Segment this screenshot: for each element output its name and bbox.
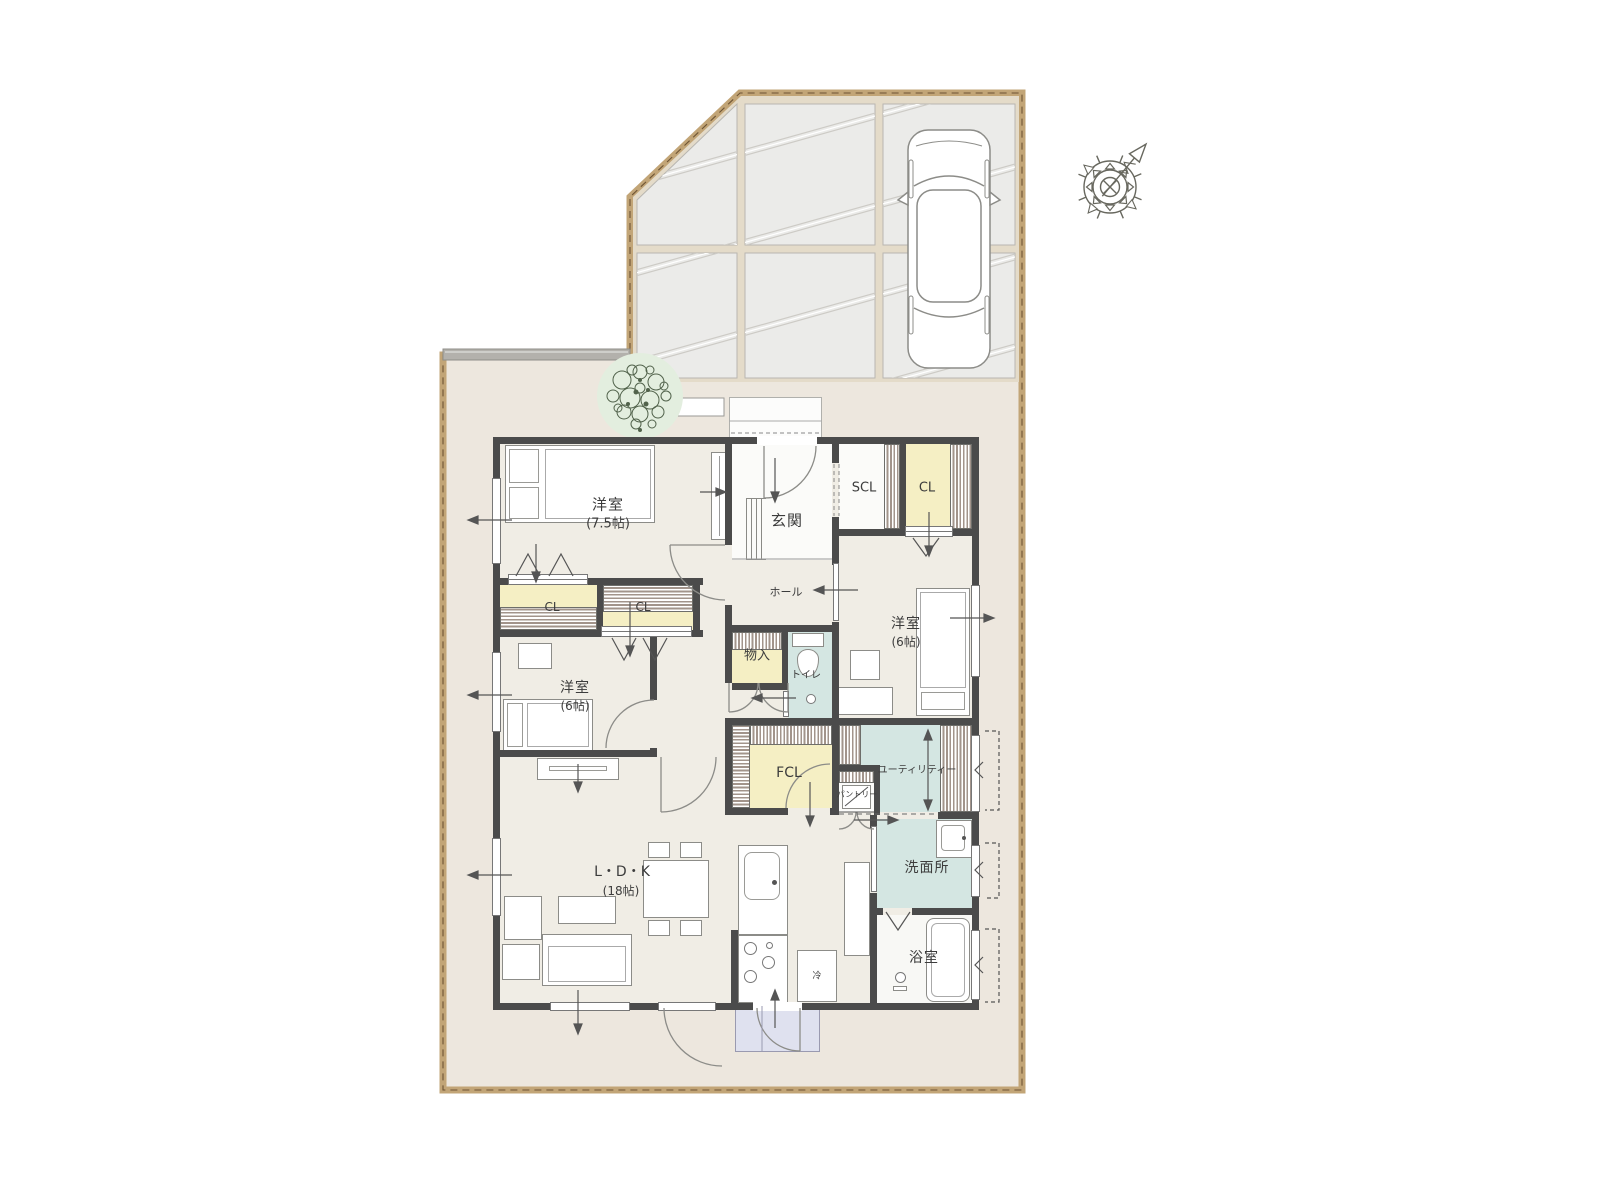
shutter-brackets xyxy=(985,731,999,1002)
side-table xyxy=(502,944,540,980)
wall xyxy=(832,622,839,725)
wall xyxy=(832,765,880,771)
room-label-bedroom6r: 洋室 xyxy=(891,617,921,631)
room-label-cl-a: CL xyxy=(544,601,559,613)
bath-stool xyxy=(893,986,907,991)
cupboard xyxy=(844,862,870,956)
fridge-label: 冷 xyxy=(812,973,821,982)
bed-pillow xyxy=(509,449,539,483)
back-door-gap xyxy=(753,1002,802,1011)
room-label-monoire: 物入 xyxy=(744,650,770,663)
dresser xyxy=(850,650,880,680)
wall xyxy=(731,930,738,1003)
window xyxy=(971,735,980,812)
room-label-hall: ホール xyxy=(770,587,803,598)
wall xyxy=(832,437,839,463)
sliding-door xyxy=(783,691,789,717)
wall xyxy=(586,578,703,585)
wall xyxy=(729,437,757,444)
utility-shelf-left xyxy=(839,725,861,765)
room-label-cl-entry: CL xyxy=(919,482,935,495)
terrace-door xyxy=(658,1002,716,1011)
wall xyxy=(938,812,979,819)
kitchen-sink xyxy=(744,852,780,900)
window xyxy=(492,652,501,732)
wall xyxy=(830,808,839,815)
tv xyxy=(549,766,607,771)
wall xyxy=(725,437,732,545)
armchair xyxy=(504,896,542,940)
bed-mattress xyxy=(920,592,966,688)
room-size-bedroom75: (7.5帖) xyxy=(586,518,630,531)
wall xyxy=(952,529,979,536)
closet-door xyxy=(905,526,953,537)
stove-burner xyxy=(762,956,775,969)
sliding-door xyxy=(871,826,877,892)
window xyxy=(971,845,980,897)
wall xyxy=(912,908,979,915)
room-label-bedroom6l: 洋室 xyxy=(560,681,590,695)
window xyxy=(971,585,980,677)
sliding-door xyxy=(833,563,839,621)
dining-chair xyxy=(680,920,702,936)
wall xyxy=(732,683,782,690)
tree-icon xyxy=(597,353,683,439)
room-label-bedroom75: 洋室 xyxy=(592,498,624,513)
stove-burner xyxy=(766,942,773,949)
wall xyxy=(493,750,657,757)
wall xyxy=(725,725,732,815)
window xyxy=(492,838,501,916)
entry-door-gap xyxy=(757,436,817,445)
room-label-bathroom: 浴室 xyxy=(909,951,939,965)
room-label-fcl: FCL xyxy=(776,766,802,780)
pantry-shelf xyxy=(839,771,874,783)
washbasin-faucet xyxy=(962,836,966,840)
monoire-shelf xyxy=(732,632,782,650)
closet-door xyxy=(601,626,692,637)
sofa-seat xyxy=(548,946,626,982)
bed-pillow xyxy=(507,703,523,747)
fence xyxy=(443,349,630,360)
dining-chair xyxy=(648,842,670,858)
wall xyxy=(493,630,603,637)
stove-burner xyxy=(744,942,757,955)
cl-entry-shelf xyxy=(950,444,972,529)
bed-pillow xyxy=(921,692,965,710)
coffee-table xyxy=(558,896,616,924)
floor-plan: 洋室 (7.5帖) 玄関 ホール SCL CL CL CL 物入 トイレ 洋室 … xyxy=(0,0,1600,1200)
wall xyxy=(782,625,788,690)
room-label-ldk: L・D・K xyxy=(594,865,650,879)
dining-chair xyxy=(680,842,702,858)
wall xyxy=(725,625,839,632)
dining-table xyxy=(643,860,709,918)
stepping-stone xyxy=(676,398,724,416)
stove-burner xyxy=(744,970,757,983)
fcl-shelf-left xyxy=(732,725,750,808)
wall xyxy=(650,637,657,700)
wall xyxy=(725,625,732,683)
window xyxy=(971,930,980,1000)
shower-drain xyxy=(895,972,906,983)
genkan-step xyxy=(746,498,766,560)
fcl-shelf-top xyxy=(750,725,832,745)
wall xyxy=(832,529,906,536)
room-label-scl: SCL xyxy=(852,482,877,495)
car-icon xyxy=(898,130,1000,368)
room-label-washroom: 洗面所 xyxy=(905,861,950,875)
bed-pillow xyxy=(509,487,539,519)
closet-door xyxy=(508,574,588,585)
kitchen-faucet xyxy=(772,880,777,885)
desk xyxy=(518,643,552,669)
wall xyxy=(832,517,839,565)
toilet-tank xyxy=(792,633,824,647)
room-size-ldk: (18帖) xyxy=(603,885,640,897)
room-label-genkan: 玄関 xyxy=(771,514,803,529)
window xyxy=(550,1002,630,1011)
desk xyxy=(837,687,893,715)
room-label-pantry: パントリー xyxy=(837,791,877,799)
wall xyxy=(870,908,883,915)
room-label-toilet: トイレ xyxy=(791,671,821,681)
scl-shelf xyxy=(884,444,900,529)
room-size-bedroom6r: (6帖) xyxy=(892,636,921,648)
compass-icon xyxy=(1078,140,1150,219)
toilet-basin xyxy=(806,694,816,704)
back-door-step xyxy=(735,1005,820,1052)
wall xyxy=(725,808,788,815)
wall xyxy=(725,605,732,625)
wall xyxy=(693,578,700,637)
wall xyxy=(817,437,823,444)
room-size-bedroom6l: (6帖) xyxy=(561,700,590,712)
cabinet-line xyxy=(719,456,720,536)
room-label-utility: ユーティリティー xyxy=(878,766,957,776)
window xyxy=(492,478,501,564)
room-label-cl-b: CL xyxy=(635,601,650,613)
wall xyxy=(725,718,979,725)
wall xyxy=(900,437,906,529)
dining-chair xyxy=(648,920,670,936)
